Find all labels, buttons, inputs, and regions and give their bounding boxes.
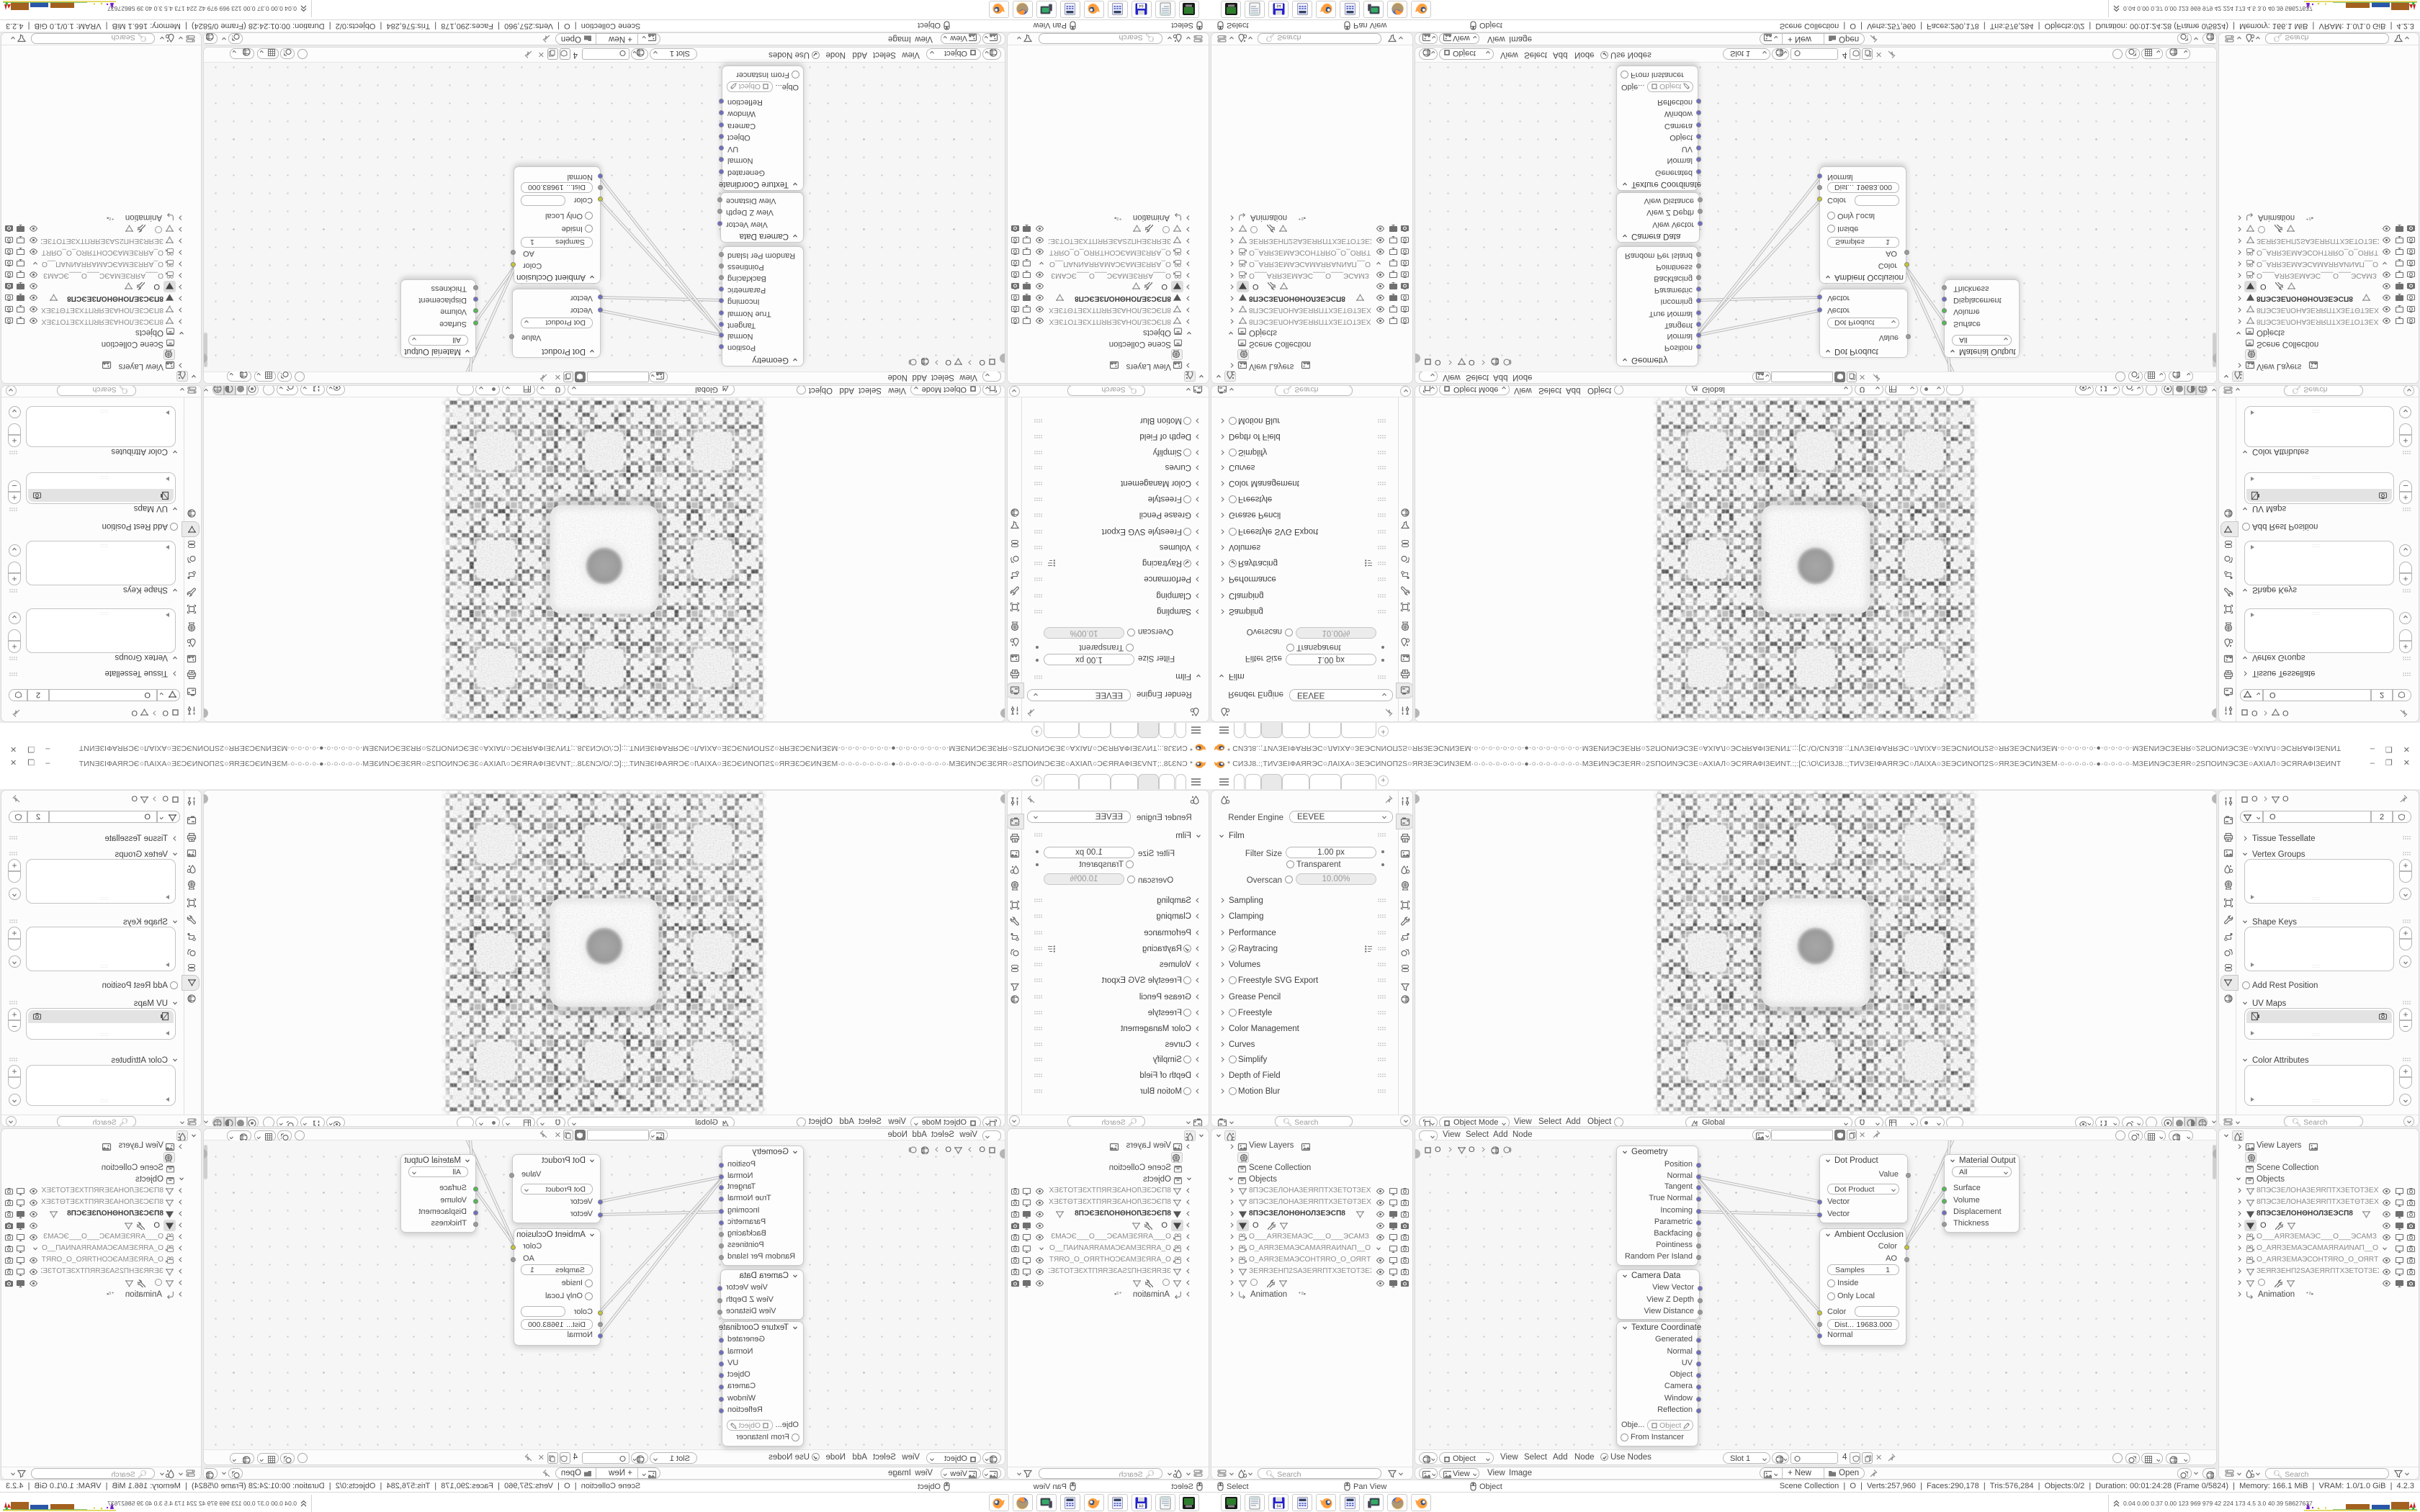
svg-text:64: 64 — [1139, 4, 1143, 8]
svg-text:64: 64 — [1276, 4, 1281, 8]
svg-text:64: 64 — [1276, 1505, 1281, 1509]
svg-text:64: 64 — [1139, 1505, 1143, 1509]
